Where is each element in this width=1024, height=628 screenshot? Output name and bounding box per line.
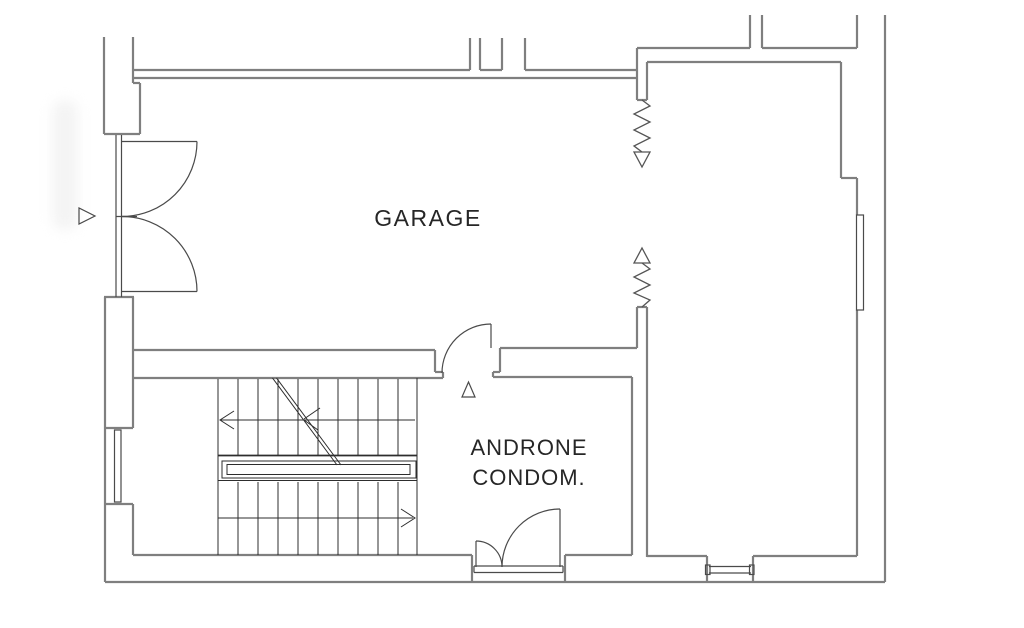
left-wall-lower xyxy=(104,297,134,582)
entrance-double-door xyxy=(116,135,197,297)
androne-label-line1: ANDRONE xyxy=(448,433,610,463)
staircase xyxy=(218,378,417,555)
top-wall-right xyxy=(637,15,857,62)
walls xyxy=(104,15,885,583)
stair-handrail xyxy=(218,456,417,481)
left-window-glass xyxy=(115,430,122,502)
entrance-direction-triangle-left-icon xyxy=(79,208,95,224)
stair-direction-arrow-down xyxy=(218,509,415,527)
left-wall-upper xyxy=(104,37,140,134)
windows xyxy=(115,215,864,575)
androne-entrance-door xyxy=(474,509,563,573)
androne-room-label: ANDRONE CONDOM. xyxy=(448,433,610,493)
androne-label-line2: CONDOM. xyxy=(448,463,610,493)
spring-coil-arrow-bottom-icon xyxy=(634,248,650,307)
spring-coil-arrow-top-icon xyxy=(634,100,650,167)
spring-symbols xyxy=(634,100,650,307)
floor-plan-canvas: GARAGE ANDRONE CONDOM. xyxy=(0,0,1024,628)
interior-door xyxy=(442,324,491,373)
garage-room-label: GARAGE xyxy=(368,205,488,232)
bottom-window-glass xyxy=(706,565,755,575)
floor-plan-drawing xyxy=(0,0,1024,628)
right-wall-niche xyxy=(857,215,864,310)
entrance-direction-triangle-androne-icon xyxy=(462,382,475,397)
bottom-wall xyxy=(105,555,885,583)
top-wall-garage xyxy=(133,38,637,78)
stair-treads-upper xyxy=(218,379,398,555)
